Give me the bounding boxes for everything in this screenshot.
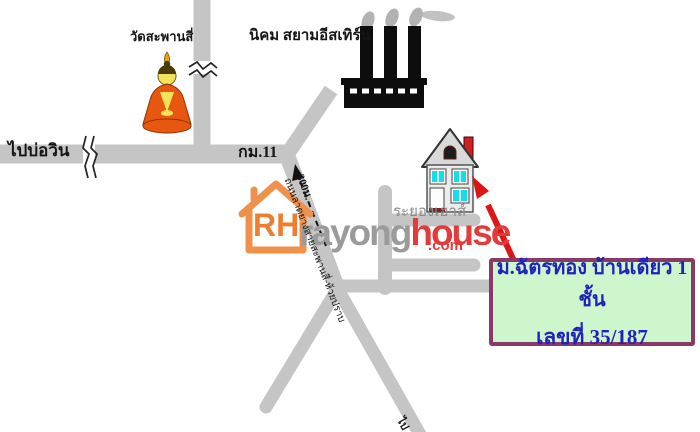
gable-window (444, 146, 456, 159)
house-icon (422, 129, 478, 212)
house-door-sill (429, 208, 445, 212)
buddha-legs (143, 119, 191, 133)
buddha-flame (164, 52, 169, 66)
roads (0, 0, 502, 432)
break-mark-vertical-road (189, 62, 217, 69)
map-labels: วัดสะพานสี่ นิคม สยามอีสเทิร์น ไปบ่อวิน … (0, 0, 700, 432)
property-info-box: ม.ฉัตรทอง บ้านเดียว 1 ชั้น เลขที่ 35/187 (489, 258, 695, 346)
distance-arrowhead (292, 164, 304, 181)
house-door (430, 188, 444, 212)
chimney-1 (360, 26, 373, 80)
house-chimney (464, 137, 473, 164)
house-body (427, 165, 473, 212)
logo-wordmark: rayonghouse (299, 212, 509, 254)
buddha-chest (160, 92, 174, 112)
factory-base (344, 82, 424, 108)
industrial-estate-label: นิคม สยามอีสเทิร์น (249, 29, 371, 45)
pointer-arrowhead (472, 176, 489, 199)
road-branch-southwest (266, 288, 338, 407)
factory-base-lip (341, 78, 427, 85)
to-bowin-label: ไปบ่อวิน (8, 142, 70, 160)
map-canvas: RH rayonghouse .com วัดสะพานสี่ นิคม สยา… (0, 0, 700, 432)
logo-watermark: RH rayonghouse .com (0, 0, 700, 432)
house-roof (422, 129, 478, 167)
buddha-hair (158, 65, 176, 74)
map-base-art (0, 0, 700, 432)
road-break-marks (83, 61, 217, 178)
smoke (359, 5, 455, 32)
rayong-house-label: ระยองเฮาส์ (393, 205, 466, 221)
distance-arrow (292, 164, 326, 246)
distance-label: 300ม. (293, 173, 313, 202)
road-factory-stub (286, 90, 331, 156)
km11-label: กม.11 (238, 145, 277, 162)
property-name: ม.ฉัตรทอง บ้านเดียว 1 ชั้น (493, 251, 691, 315)
logo-house-icon (242, 184, 310, 250)
buddha-robe (143, 84, 191, 124)
chimney-2 (384, 26, 397, 80)
chimney-3 (408, 26, 421, 80)
buddha-icon (143, 52, 191, 133)
buddha-head (158, 67, 176, 85)
factory-icon (341, 5, 455, 108)
property-number: เลขที่ 35/187 (536, 321, 648, 354)
bottom-road-label: ไป (394, 416, 410, 432)
house-windows (430, 169, 469, 203)
road-diagonal-main (285, 150, 338, 290)
logo-word-rayong: rayong (299, 212, 410, 253)
road-name-label: ถนนลาดยางสายสะพานสี่-ห้วยปราบ (281, 177, 346, 324)
logo-word-house: house (410, 212, 509, 253)
logo-initials: RH (253, 207, 299, 244)
temple-label: วัดสะพานสี่ (130, 30, 193, 44)
logo-tld: .com (428, 237, 463, 254)
break-mark-horizontal-road (83, 136, 89, 178)
road-branch-southeast (336, 286, 422, 432)
